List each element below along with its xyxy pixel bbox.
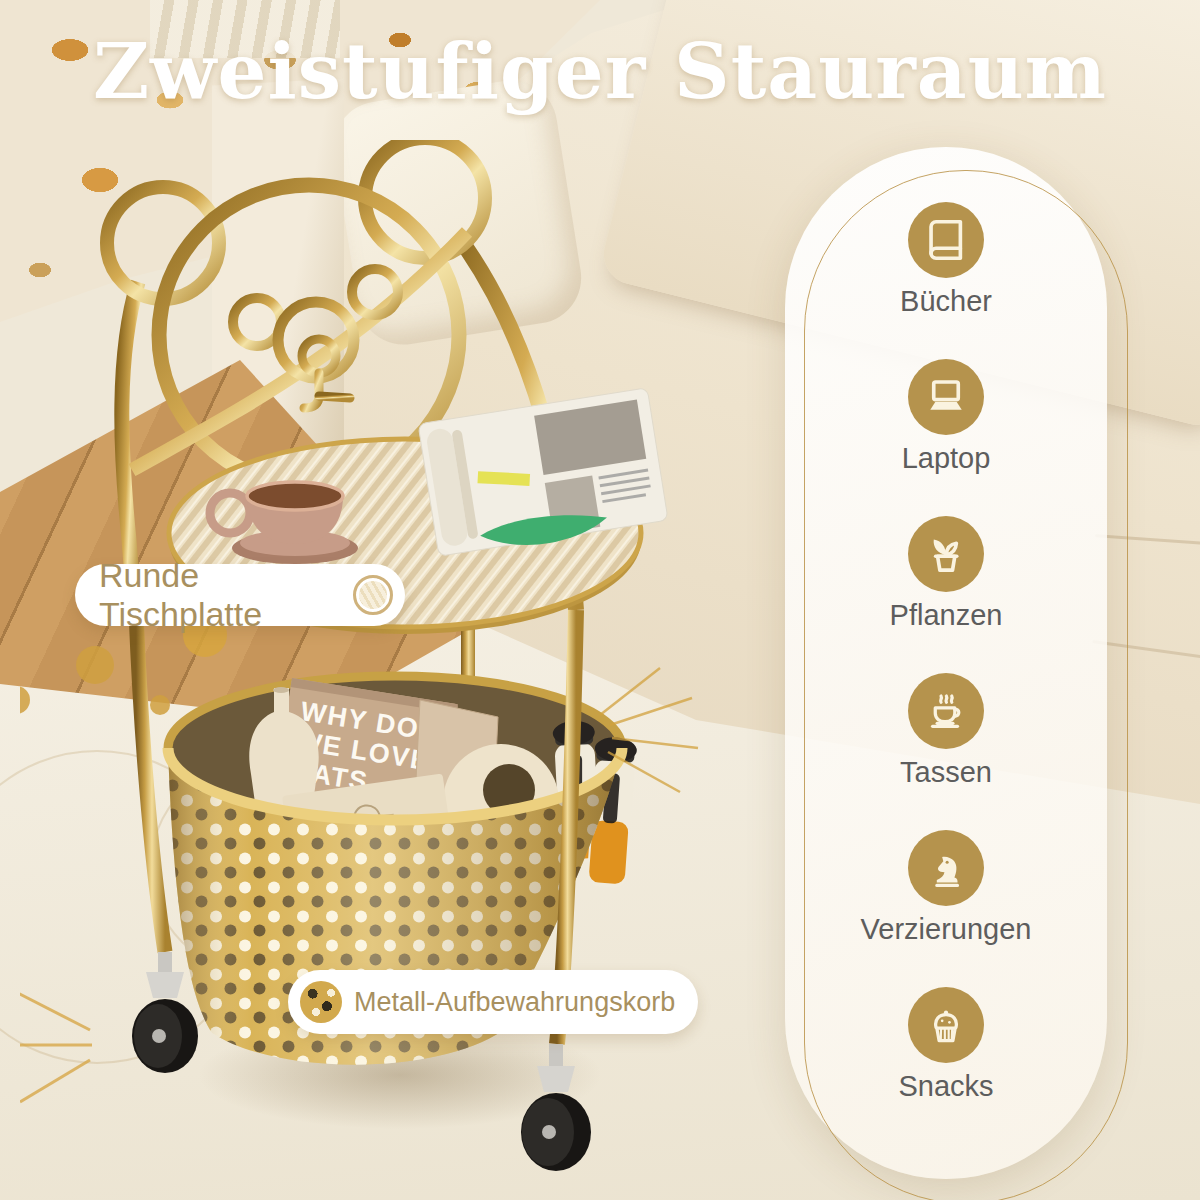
feature-label: Bücher — [900, 285, 992, 318]
laptop-icon — [908, 359, 984, 435]
book-icon — [908, 202, 984, 278]
rug-star-left — [20, 988, 92, 1102]
plant-icon — [908, 516, 984, 592]
callout-tabletop: Runde Tischplatte — [75, 564, 405, 626]
features-list: Bücher Laptop Pflanzen — [785, 147, 1107, 1179]
feature-item-pflanzen: Pflanzen — [890, 516, 1003, 632]
pole-left — [136, 612, 165, 952]
feature-item-laptop: Laptop — [902, 359, 991, 475]
feature-item-verzierungen: Verzierungen — [861, 830, 1032, 946]
bear-face — [233, 269, 398, 408]
page-title: Zweistufiger Stauraum — [0, 26, 1200, 116]
feature-label: Snacks — [898, 1070, 993, 1103]
cupcake-icon — [908, 987, 984, 1063]
tabletop-marker-icon — [353, 575, 393, 615]
bear-trolley-illustration: WHY DO WE LOVE CATS — [20, 140, 700, 1200]
feature-label: Verzierungen — [861, 913, 1032, 946]
feature-label: Laptop — [902, 442, 991, 475]
caster-wheel-left — [132, 952, 198, 1073]
caster-wheel-right — [521, 1044, 591, 1171]
feature-label: Tassen — [900, 756, 992, 789]
basket-marker-icon — [300, 981, 342, 1023]
feature-item-buecher: Bücher — [900, 202, 992, 318]
callout-tabletop-label: Runde Tischplatte — [99, 556, 353, 634]
product-scene: WHY DO WE LOVE CATS — [0, 0, 1200, 1200]
callout-basket-label: Metall-Aufbewahrungskorb — [354, 987, 675, 1018]
callout-basket: Metall-Aufbewahrungskorb — [288, 970, 698, 1034]
chess-knight-icon — [908, 830, 984, 906]
feature-label: Pflanzen — [890, 599, 1003, 632]
feature-item-tassen: Tassen — [900, 673, 992, 789]
feature-item-snacks: Snacks — [898, 987, 993, 1103]
coffee-cup-icon — [908, 673, 984, 749]
